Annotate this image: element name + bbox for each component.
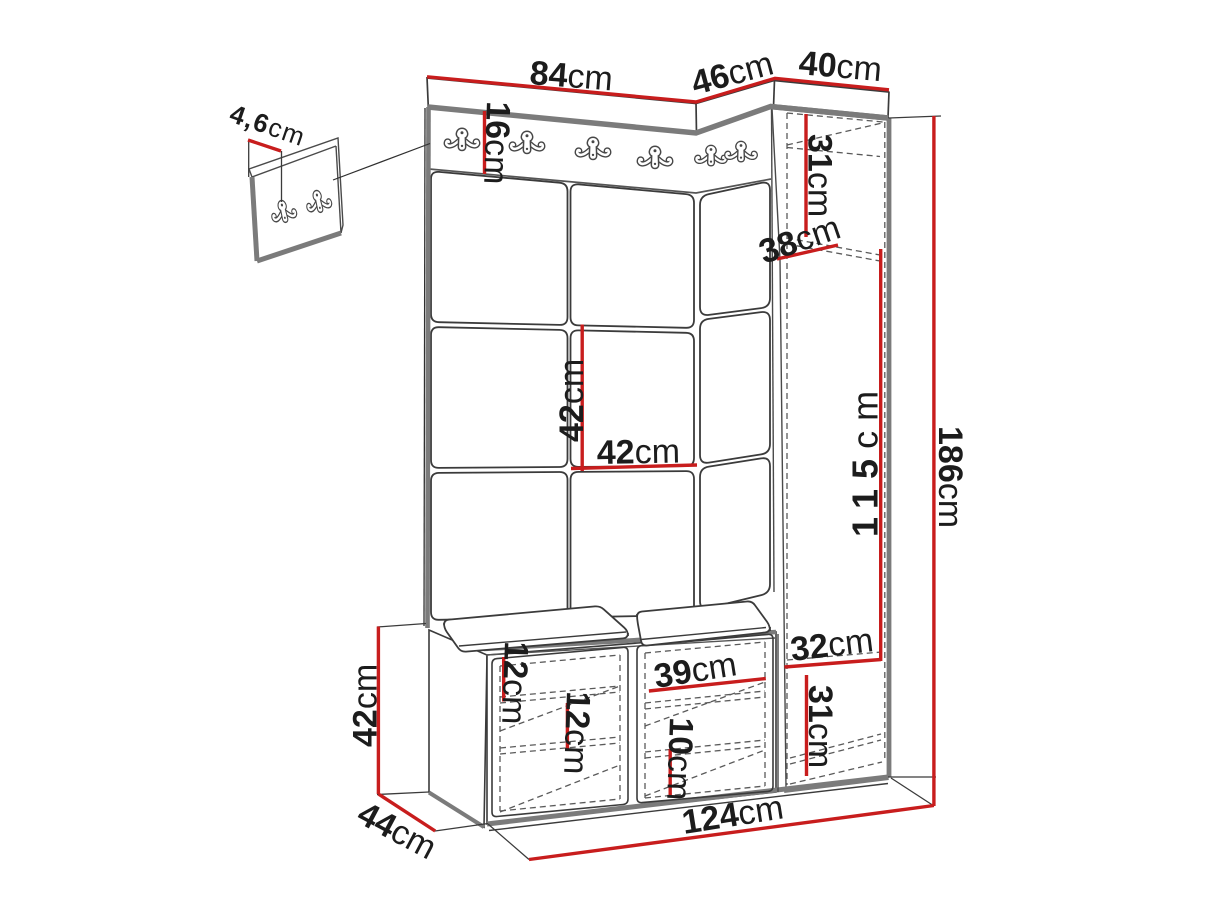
svg-text:16cm: 16cm	[476, 101, 517, 185]
svg-text:10cm: 10cm	[659, 717, 700, 801]
svg-text:40cm: 40cm	[797, 44, 883, 89]
svg-text:115cm: 115cm	[845, 381, 886, 537]
svg-text:84cm: 84cm	[528, 54, 614, 98]
svg-text:42cm: 42cm	[596, 433, 680, 472]
svg-text:186cm: 186cm	[931, 426, 969, 528]
svg-text:12cm: 12cm	[494, 641, 535, 725]
svg-text:31cm: 31cm	[801, 685, 839, 768]
svg-text:12cm: 12cm	[556, 691, 597, 775]
svg-text:31cm: 31cm	[801, 134, 839, 217]
svg-text:42cm: 42cm	[553, 359, 591, 442]
svg-text:42cm: 42cm	[347, 664, 385, 747]
